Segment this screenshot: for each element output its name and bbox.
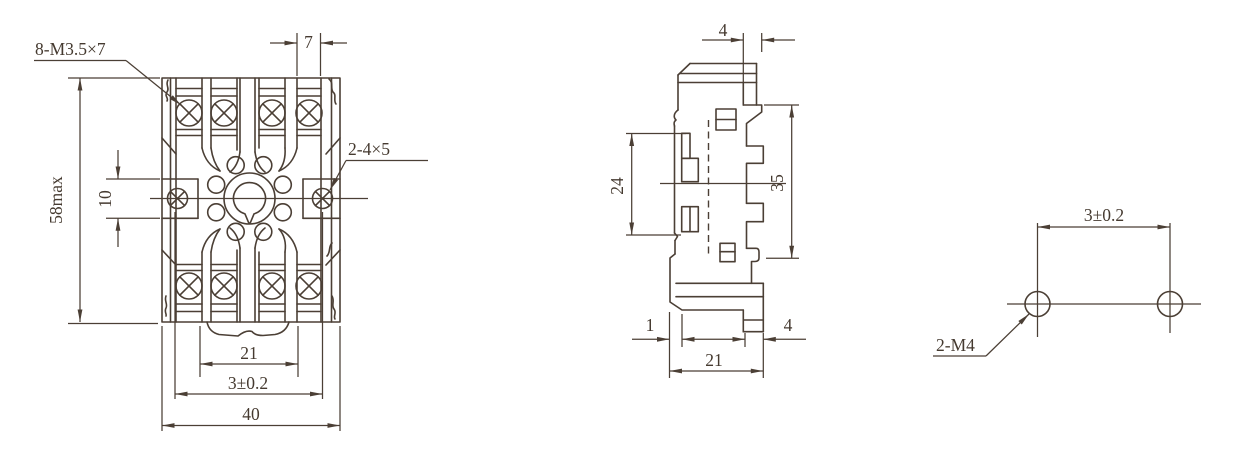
body-curve [674,110,678,126]
dim-body-height-label: 35 [767,174,787,192]
front-bottom-tab [207,322,289,336]
hole-callout-label: 2-M4 [936,335,975,355]
body-line [747,146,764,203]
screw-terminal-icon [176,273,202,299]
screw-terminal-icon [296,273,322,299]
pin-hole [208,204,225,221]
leader-line [126,61,181,106]
dim-side-hole-offset-label: 10 [95,190,115,208]
screw-terminal-icon [259,100,285,126]
side-view: 4 24 35 1 4 21 [607,20,806,378]
body-curve [211,229,220,252]
dim-clip-height-label: 24 [607,177,627,195]
body-line [747,203,764,248]
screw-terminal-icon [211,273,237,299]
body-line [162,138,176,154]
body-line [326,138,340,154]
screw-terminal-icon [211,100,237,126]
dim-overall-width-label: 40 [242,404,260,424]
body-line [326,250,340,265]
dim-hole-spacing-label: 3±0.2 [1084,205,1124,225]
center-keyway-hole [234,183,266,224]
front-view: 58max 10 7 8-M3.5×7 2-4×5 21 [34,32,428,431]
technical-drawing-page: 58max 10 7 8-M3.5×7 2-4×5 21 [0,0,1250,470]
dim-mount-spacing-label: 3±0.2 [228,373,268,393]
mounting-hole-view: 3±0.2 2-M4 [933,205,1201,356]
body-squiggle [332,296,335,319]
body-line [162,250,176,265]
body-squiggle [166,80,168,101]
side-body-outline [670,64,763,332]
body-squiggle [329,79,336,104]
clip-tab [682,133,690,158]
dim-rail-offset-label: 4 [719,20,728,40]
clip-tab [682,158,699,181]
dim-tab-width-label: 21 [240,343,258,363]
dim-overall-height-label: 58max [46,176,66,224]
body-curve [230,228,240,248]
relay-socket-dimension-drawing: 58max 10 7 8-M3.5×7 2-4×5 21 [0,0,1250,470]
side-hole-callout-label: 2-4×5 [348,139,390,159]
body-curve [675,233,678,241]
thread-callout-label: 8-M3.5×7 [35,39,106,59]
pin-hole [208,176,225,193]
dim-foot-width-label: 21 [705,350,723,370]
leader-line [330,161,346,191]
front-dimensions: 58max 10 7 8-M3.5×7 2-4×5 21 [34,32,428,431]
body-curve [230,152,240,172]
screw-terminal-icon [296,100,322,126]
body-line [747,248,760,283]
dim-foot-depth-label: 4 [784,315,793,335]
dim-foot-offset-label: 1 [646,315,655,335]
leader-line [986,314,1029,356]
dim-slot-width-label: 7 [304,32,313,52]
body-curve [211,148,220,171]
body-line [743,105,761,146]
pin-hole [255,223,272,240]
pin-hole [227,223,244,240]
pin-hole [274,204,291,221]
pin-hole [274,176,291,193]
body-squiggle [165,296,166,316]
screw-terminal-icon [259,273,285,299]
front-side-holes [150,189,368,209]
